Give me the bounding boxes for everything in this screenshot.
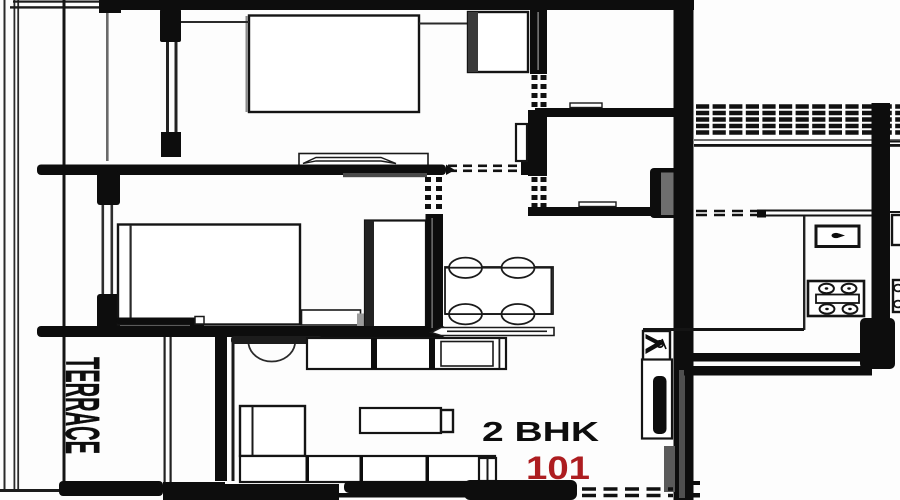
svg-text:TERRACE: TERRACE — [55, 357, 108, 454]
svg-text:2 BHK: 2 BHK — [482, 416, 599, 447]
